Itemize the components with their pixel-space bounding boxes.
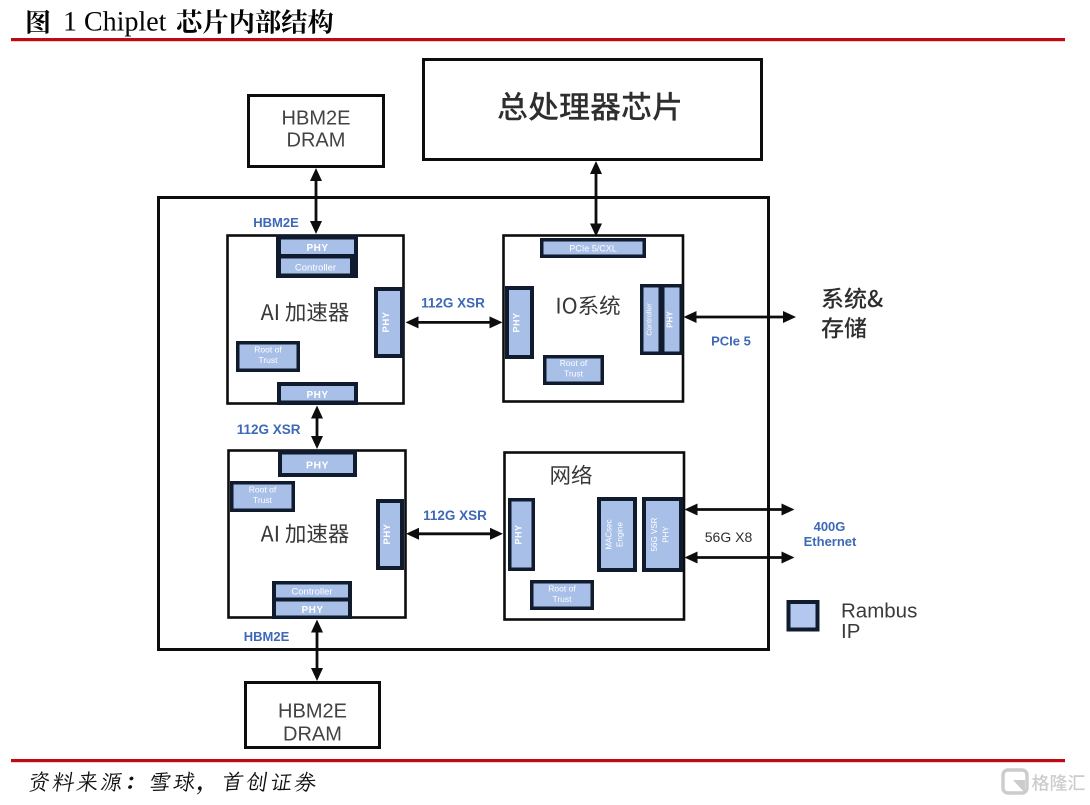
svg-text:PHY: PHY: [666, 311, 675, 328]
svg-text:PCIe 5/CXL: PCIe 5/CXL: [569, 244, 617, 254]
svg-text:Controller: Controller: [295, 263, 336, 274]
svg-text:Root of: Root of: [254, 345, 282, 355]
svg-text:HBM2E: HBM2E: [278, 701, 347, 723]
svg-text:400G: 400G: [814, 519, 846, 534]
svg-text:DRAM: DRAM: [283, 724, 342, 746]
svg-text:PHY: PHY: [512, 312, 522, 332]
svg-text:56G VSR: 56G VSR: [650, 517, 659, 551]
svg-text:112G XSR: 112G XSR: [237, 422, 301, 437]
svg-text:Ethernet: Ethernet: [804, 534, 857, 549]
svg-text:Engine: Engine: [616, 522, 625, 547]
svg-text:DRAM: DRAM: [287, 130, 346, 152]
svg-text:PHY: PHY: [381, 311, 392, 332]
svg-text:PHY: PHY: [306, 243, 328, 254]
svg-text:PHY: PHY: [382, 523, 393, 544]
svg-text:Controller: Controller: [291, 587, 332, 598]
svg-text:112G XSR: 112G XSR: [421, 296, 485, 311]
svg-text:HBM2E: HBM2E: [244, 629, 290, 644]
svg-text:IP: IP: [841, 620, 860, 643]
svg-text:Trust: Trust: [564, 369, 584, 379]
svg-text:PCIe 5: PCIe 5: [711, 334, 751, 349]
svg-text:Root of: Root of: [548, 584, 576, 594]
svg-text:Trust: Trust: [552, 594, 572, 604]
svg-text:PHY: PHY: [514, 524, 524, 544]
svg-text:HBM2E: HBM2E: [253, 215, 299, 230]
svg-text:MACsec: MACsec: [605, 519, 614, 549]
svg-text:PHY: PHY: [662, 526, 671, 543]
svg-text:Controller: Controller: [645, 303, 654, 336]
svg-text:Root of: Root of: [560, 358, 588, 368]
svg-text:Root of: Root of: [249, 485, 277, 495]
svg-text:PHY: PHY: [301, 605, 323, 616]
svg-text:PHY: PHY: [306, 390, 328, 401]
svg-text:HBM2E: HBM2E: [282, 108, 351, 130]
svg-text:56G X8: 56G X8: [705, 529, 753, 545]
svg-text:Trust: Trust: [258, 355, 278, 365]
svg-text:112G XSR: 112G XSR: [423, 508, 487, 523]
svg-text:Trust: Trust: [253, 495, 273, 505]
svg-text:PHY: PHY: [306, 460, 329, 472]
